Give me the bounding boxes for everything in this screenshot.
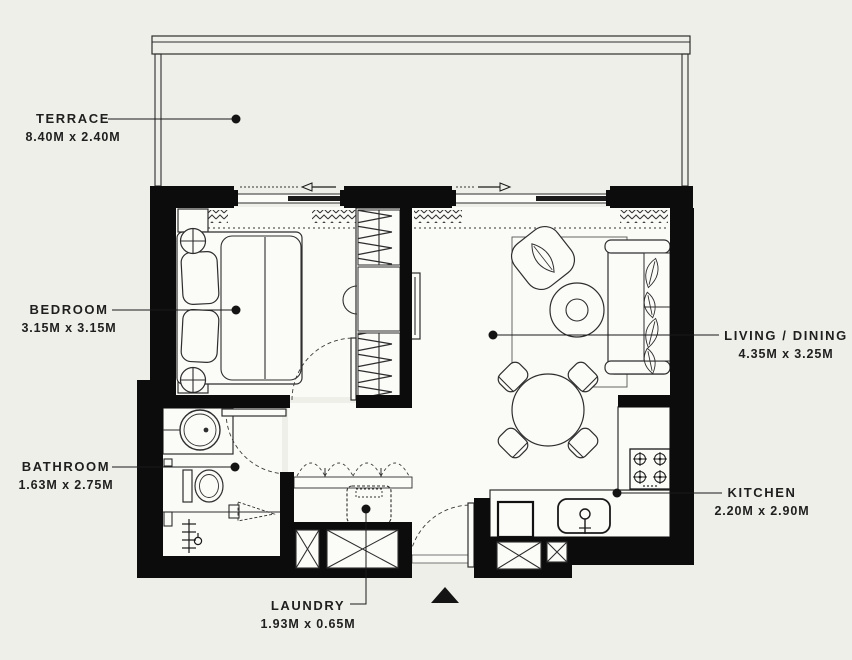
living-dining-dimensions: 4.35M x 3.25M [738, 347, 833, 361]
bedroom-furniture [177, 208, 420, 400]
lamp-icon [181, 229, 206, 254]
threshold [412, 555, 474, 563]
cabinet-icon [296, 530, 319, 568]
bathroom-name: BATHROOM [22, 459, 110, 474]
bedroom-dimensions: 3.15M x 3.15M [21, 321, 116, 335]
pillow [181, 251, 220, 305]
bathroom-dimensions: 1.63M x 2.75M [18, 478, 113, 492]
terrace-name: TERRACE [36, 111, 110, 126]
curtain-icon [312, 210, 358, 223]
sink-icon [558, 499, 610, 534]
tv-icon [411, 273, 420, 339]
cabinet-icon [547, 542, 567, 562]
living-dining-name: LIVING / DINING [724, 328, 848, 343]
cabinet-icon [327, 530, 398, 568]
entrance-door [468, 503, 474, 567]
bedroom-door [351, 338, 356, 400]
terrace-dimensions: 8.40M x 2.40M [25, 130, 120, 144]
laundry-dimensions: 1.93M x 0.65M [260, 617, 355, 631]
terrace-railing [152, 36, 690, 54]
floor-plan-drawing: TERRACE 8.40M x 2.40M BEDROOM 3.15M x 3.… [0, 0, 852, 660]
coffee-table [550, 283, 604, 337]
kitchen-dimensions: 2.20M x 2.90M [714, 504, 809, 518]
lamp-icon [181, 368, 206, 393]
bedroom-name: BEDROOM [29, 302, 108, 317]
sofa [605, 240, 670, 375]
curtain-icon [414, 210, 462, 223]
kitchen-cabinet [498, 502, 533, 537]
pillow [181, 309, 220, 363]
curtain-icon [620, 210, 668, 223]
cabinet-icon [497, 542, 541, 569]
floor-plan: TERRACE 8.40M x 2.40M BEDROOM 3.15M x 3.… [0, 0, 852, 660]
dining-table [512, 374, 584, 446]
kitchen-name: KITCHEN [728, 485, 797, 500]
stove-icon [630, 449, 670, 489]
bathroom-door [222, 409, 286, 416]
laundry-name: LAUNDRY [271, 598, 345, 613]
